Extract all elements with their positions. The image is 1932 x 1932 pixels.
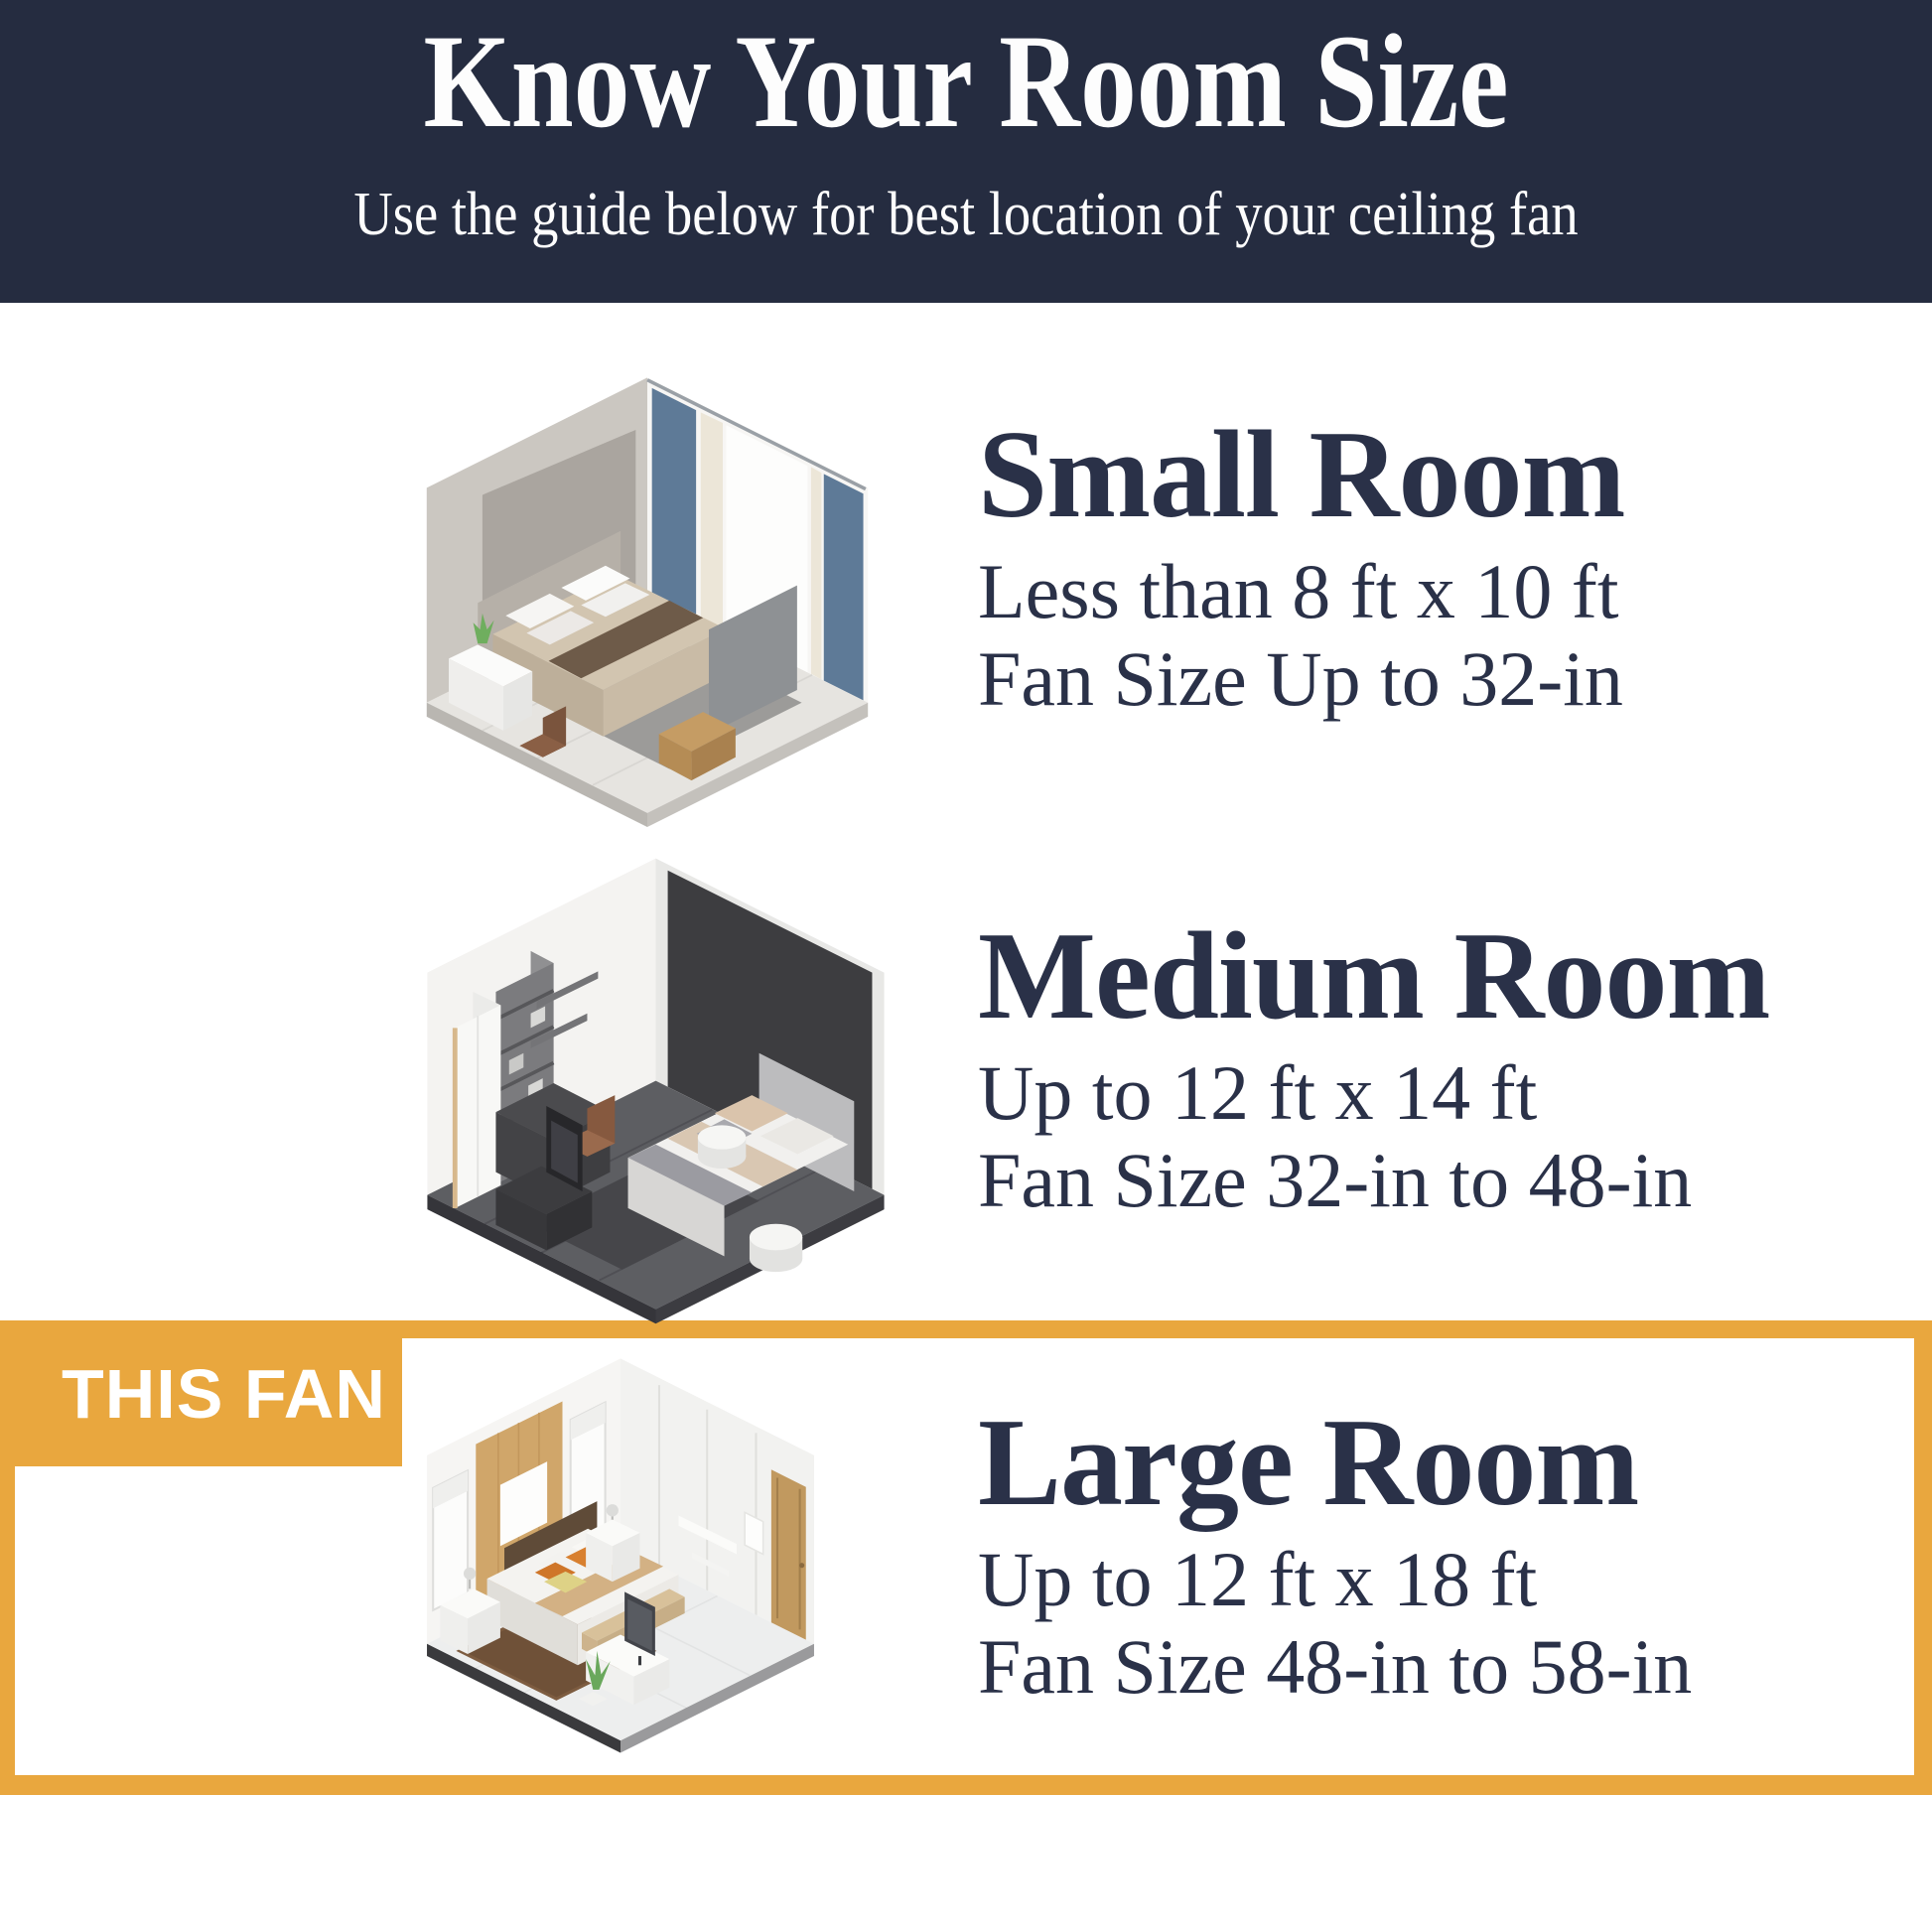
large-room-title: Large Room <box>978 1401 1692 1526</box>
medium-room-dimensions: Up to 12 ft x 14 ft <box>978 1049 1769 1137</box>
this-fan-badge-label: THIS FAN <box>62 1354 386 1434</box>
this-fan-badge: THIS FAN <box>0 1320 402 1466</box>
large-room-door <box>771 1469 806 1639</box>
page-subtitle: Use the guide below for best location of… <box>116 177 1816 252</box>
large-bedroom-isometric-illustration <box>386 1303 855 1771</box>
large-room-fan-size: Fan Size 48-in to 58-in <box>978 1623 1692 1711</box>
large-room-dimensions: Up to 12 ft x 18 ft <box>978 1536 1692 1623</box>
small-room-dimensions: Less than 8 ft x 10 ft <box>978 548 1625 635</box>
small-room-info: Small Room Less than 8 ft x 10 ft Fan Si… <box>978 413 1625 723</box>
header-banner: Know Your Room Size Use the guide below … <box>0 0 1932 303</box>
small-room-fan-size: Fan Size Up to 32-in <box>978 635 1625 723</box>
medium-room-nightstand-right <box>750 1224 802 1272</box>
infographic-page: Know Your Room Size Use the guide below … <box>0 0 1932 1932</box>
page-title: Know Your Room Size <box>155 8 1778 157</box>
medium-bedroom-isometric-illustration <box>379 792 932 1345</box>
small-bedroom-isometric-illustration <box>380 314 914 848</box>
medium-room-info: Medium Room Up to 12 ft x 14 ft Fan Size… <box>978 914 1769 1224</box>
large-room-info: Large Room Up to 12 ft x 18 ft Fan Size … <box>978 1401 1692 1711</box>
medium-room-nightstand-left <box>698 1125 746 1169</box>
medium-room-fan-size: Fan Size 32-in to 48-in <box>978 1137 1769 1224</box>
small-room-title: Small Room <box>978 413 1625 538</box>
medium-room-title: Medium Room <box>978 914 1769 1039</box>
